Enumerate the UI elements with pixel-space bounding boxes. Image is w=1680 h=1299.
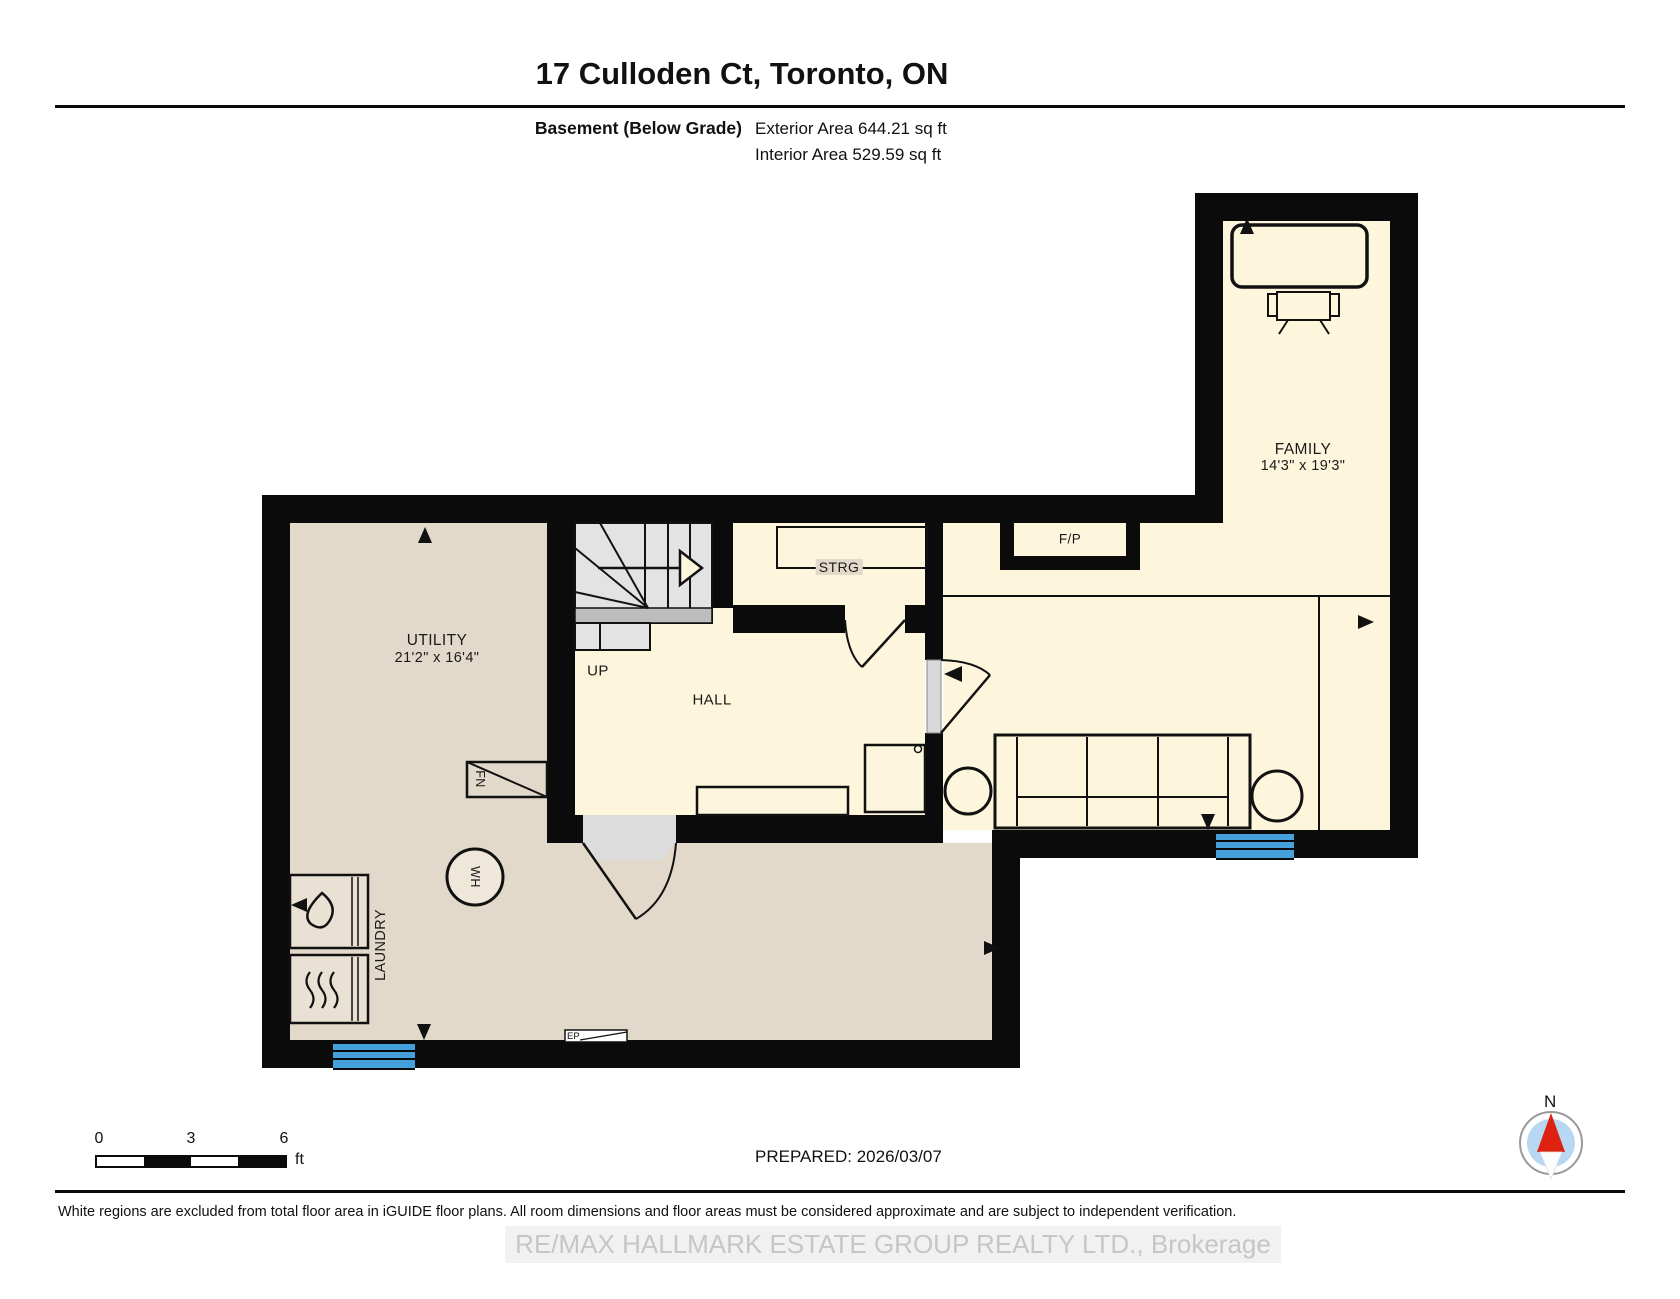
side-table (1252, 771, 1302, 821)
scale-tick-3: 3 (187, 1130, 196, 1148)
stairs-up-label: UP (587, 663, 609, 680)
washer (290, 875, 368, 948)
laundry-label: LAUNDRY (373, 909, 389, 981)
plan-linework (0, 0, 1680, 1299)
staircase (575, 523, 712, 650)
door-storage-hall (845, 620, 905, 667)
scale-unit: ft (295, 1151, 304, 1169)
fireplace-label: F/P (1059, 532, 1081, 547)
scale-tick-0: 0 (95, 1130, 104, 1148)
room-label-family: FAMILY (1275, 441, 1331, 459)
door-hall-family (927, 660, 990, 733)
electrical-panel-label: EP (567, 1031, 580, 1042)
hall-cabinet (865, 745, 925, 812)
room-label-storage: STRG (816, 559, 863, 575)
hall-table (697, 787, 848, 815)
scale-bar-strip (95, 1155, 287, 1168)
desk (1232, 225, 1367, 287)
dryer (290, 955, 368, 1023)
room-label-utility: UTILITY (407, 632, 468, 650)
chair (1268, 292, 1339, 334)
floor-plan-page: 17 Culloden Ct, Toronto, ON Basement (Be… (0, 0, 1680, 1299)
room-dims-utility: 21'2" x 16'4" (395, 650, 480, 666)
footer-divider (55, 1190, 1625, 1193)
compass-north-label: N (1544, 1092, 1556, 1112)
room-label-hall: HALL (692, 692, 731, 709)
room-dims-family: 14'3" x 19'3" (1261, 458, 1346, 474)
north-arrow-icon (1520, 1112, 1582, 1179)
brokerage-watermark: RE/MAX HALLMARK ESTATE GROUP REALTY LTD.… (505, 1226, 1281, 1263)
door-hall-laundry (583, 843, 676, 919)
side-table (945, 768, 991, 814)
prepared-date: PREPARED: 2026/03/07 (755, 1147, 942, 1167)
furnace-label: FN (473, 770, 487, 787)
direction-arrow-icon (944, 666, 962, 682)
water-heater-label: WH (468, 866, 482, 888)
scale-tick-6: 6 (280, 1130, 289, 1148)
disclaimer-text: White regions are excluded from total fl… (58, 1204, 1236, 1220)
